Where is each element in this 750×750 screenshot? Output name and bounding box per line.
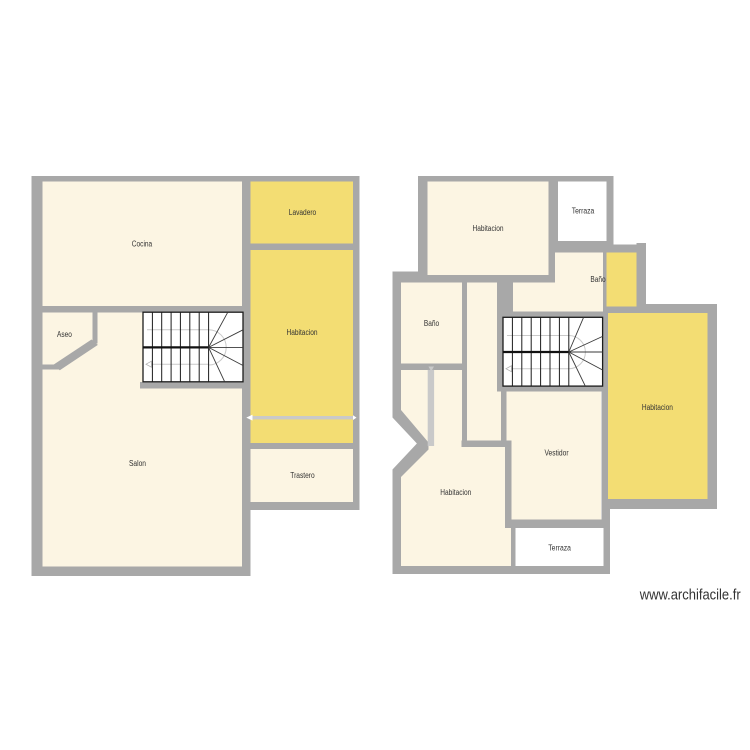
svg-text:Trastero: Trastero (290, 471, 315, 480)
svg-text:Habitacion: Habitacion (473, 224, 504, 233)
svg-text:Habitacion: Habitacion (440, 488, 471, 497)
svg-text:Terraza: Terraza (572, 207, 595, 216)
svg-text:Baño: Baño (590, 275, 606, 284)
svg-text:Terraza: Terraza (548, 544, 571, 553)
svg-text:www.archifacile.fr: www.archifacile.fr (639, 586, 741, 603)
svg-text:Habitacion: Habitacion (287, 328, 318, 337)
svg-text:Cocina: Cocina (132, 239, 153, 248)
svg-text:Baño: Baño (424, 319, 440, 328)
svg-text:Vestidor: Vestidor (544, 449, 568, 458)
svg-text:Habitacion: Habitacion (642, 403, 673, 412)
svg-text:Salon: Salon (129, 459, 146, 468)
svg-text:Aseo: Aseo (57, 330, 72, 339)
svg-text:Lavadero: Lavadero (289, 208, 317, 217)
